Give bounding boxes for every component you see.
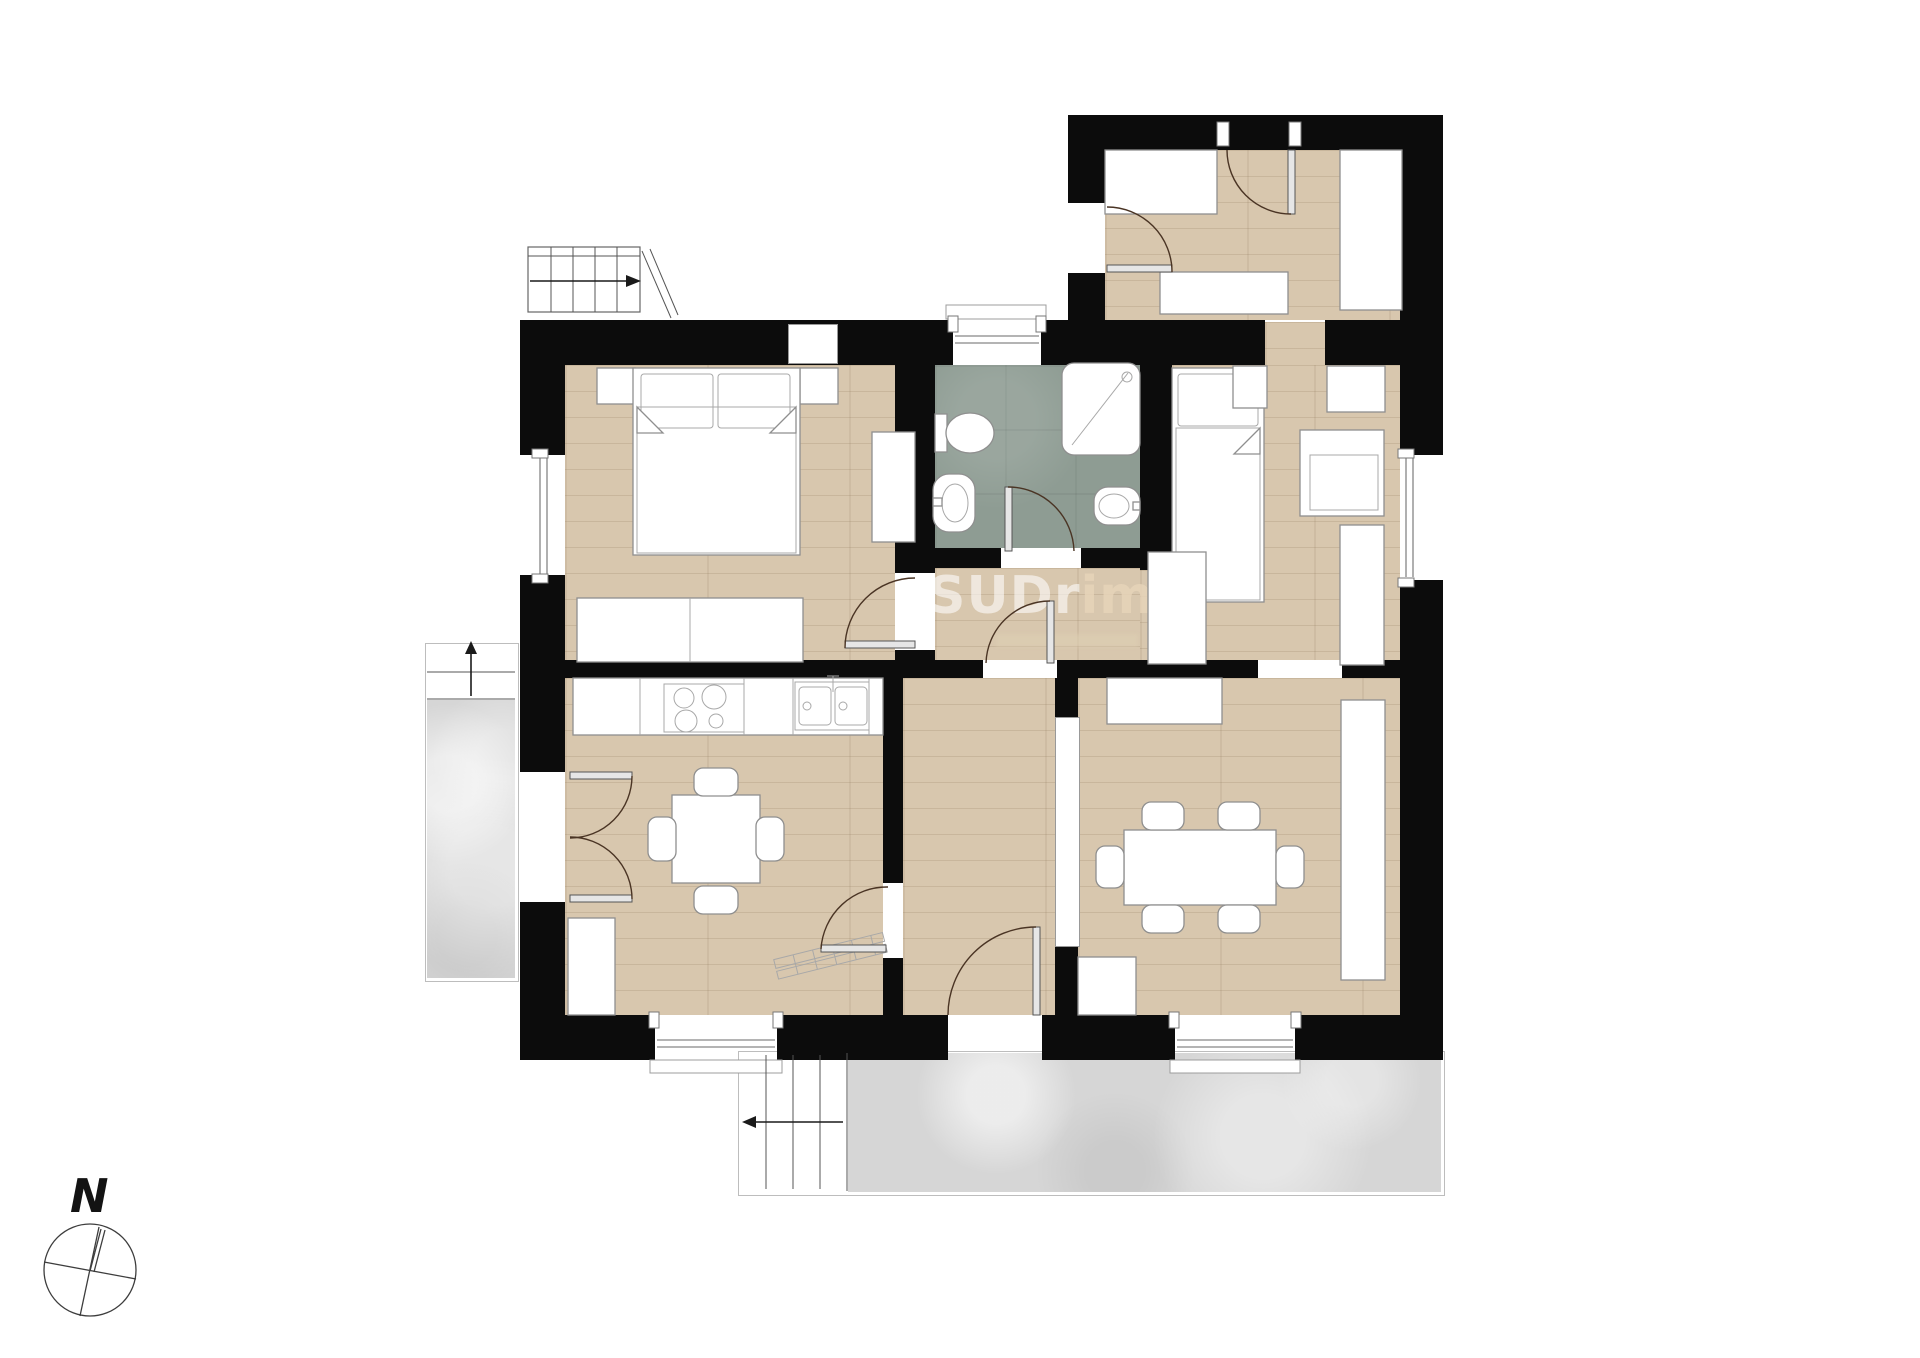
shower [1062, 363, 1140, 455]
wardrobe-right [1340, 525, 1384, 665]
window-bedroom2-right [1398, 449, 1414, 587]
window-bathroom-top [946, 305, 1046, 343]
bidet-tap [1133, 502, 1140, 510]
kitchen-counter [573, 678, 883, 735]
nightstand-right [800, 368, 838, 404]
chair-bottom-2 [1218, 905, 1260, 933]
chair-right [756, 817, 784, 861]
stairs-top-left [528, 247, 678, 318]
chair-left [1096, 846, 1124, 888]
cabinet-left [1148, 552, 1206, 664]
nightstand-left [597, 368, 635, 404]
toilet-tank [935, 414, 947, 452]
bedroom2-furniture [1148, 366, 1385, 665]
cabinet-top-2 [1327, 366, 1385, 412]
chair-top [694, 768, 738, 796]
window-bedroom1-left [532, 449, 548, 583]
door-bathroom [1005, 487, 1074, 551]
cabinet-top-1 [1233, 366, 1267, 408]
stairs-terrace-bottom [742, 1053, 847, 1191]
kitchen-cabinet-low [568, 918, 615, 1015]
compass-north-label: N [70, 1169, 109, 1223]
compass: N [44, 1169, 136, 1316]
dining-table [1124, 830, 1276, 905]
plan-overlay: N [0, 0, 1920, 1358]
sideboard [1341, 700, 1385, 980]
bathroom-fixtures [933, 363, 1140, 532]
door-corridor-terrace [948, 927, 1040, 1015]
door-hall-corridor [986, 601, 1054, 663]
dresser [872, 432, 915, 542]
living-room-furniture [1078, 678, 1385, 1015]
desk [1300, 430, 1384, 516]
chair-bottom-1 [1142, 905, 1184, 933]
door-entry-hall-top [1217, 122, 1301, 214]
window-kitchen-bottom [649, 1012, 783, 1073]
toilet-bowl [946, 413, 994, 453]
washbasin-tap [933, 498, 942, 506]
chair-left [648, 817, 676, 861]
chest [1160, 272, 1288, 314]
bedroom1-furniture [577, 368, 915, 662]
french-door-kitchen [570, 772, 632, 902]
chair-bottom [694, 886, 738, 914]
cabinet-corner [1078, 957, 1136, 1015]
window-living-bottom [1169, 1012, 1301, 1073]
floor-plan-canvas: SUDrimm [0, 0, 1920, 1358]
chair-right [1276, 846, 1304, 888]
stairs-terrace-left [427, 641, 515, 699]
kitchen-furniture [568, 676, 887, 1015]
kitchen-table [672, 795, 760, 883]
closet-top [1105, 150, 1217, 214]
door-entry [1107, 207, 1172, 272]
chair-top-2 [1218, 802, 1260, 830]
double-bed [633, 368, 800, 555]
entry-hall-furniture [1105, 150, 1402, 314]
door-kitchen-corridor [821, 887, 888, 952]
cabinet-top [1107, 678, 1222, 724]
door-bedroom1 [845, 578, 915, 648]
radiator [774, 933, 888, 980]
closet-right [1340, 150, 1402, 310]
chair-top-1 [1142, 802, 1184, 830]
